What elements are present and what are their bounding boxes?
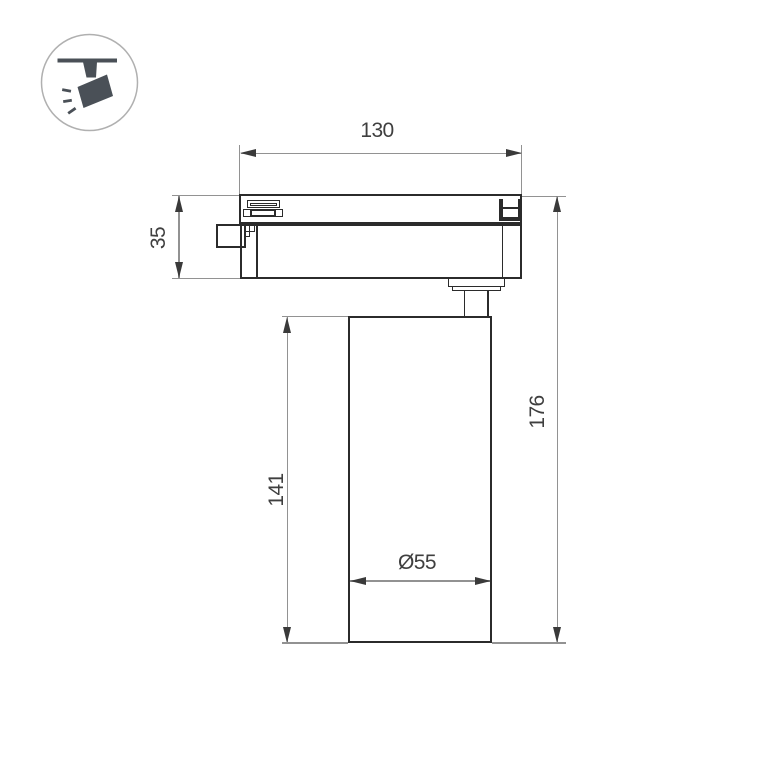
- dimension-line: [557, 197, 558, 643]
- contact-bar-upper-inner: [250, 203, 277, 206]
- technical-drawing-canvas: 130 35 141 176: [0, 0, 767, 767]
- arrowhead: [283, 627, 291, 643]
- dimension-line: [350, 580, 490, 581]
- arrowhead: [553, 627, 561, 643]
- swivel-stem-line: [464, 290, 466, 316]
- dimension-line: [241, 153, 521, 154]
- knob-latch-step: [246, 224, 250, 237]
- track-spotlight-icon: [40, 33, 139, 132]
- arrowhead: [175, 196, 183, 212]
- adapter-inner-line: [256, 226, 258, 277]
- arrowhead: [283, 317, 291, 333]
- dim-label-adapter-height: 35: [148, 213, 170, 263]
- adapter-connector-crossbar: [503, 207, 518, 210]
- dim-label-body-diameter: Ø55: [377, 552, 457, 574]
- dim-label-overall-height: 176: [527, 387, 549, 437]
- swivel-bracket-step2: [452, 286, 501, 292]
- adapter-lower-housing: [240, 224, 522, 279]
- adapter-inner-line: [502, 226, 504, 277]
- arrowhead: [350, 577, 366, 585]
- arrowhead: [506, 149, 522, 157]
- lock-knob: [216, 224, 246, 248]
- arrowhead: [175, 262, 183, 278]
- lamp-body-outline: [348, 316, 492, 643]
- dim-label-body-height: 141: [266, 465, 288, 515]
- arrowhead: [553, 196, 561, 212]
- arrowhead: [240, 149, 256, 157]
- extension-line: [282, 316, 348, 317]
- adapter-connector-detail: [499, 199, 522, 221]
- arrowhead: [475, 577, 491, 585]
- contact-bar-lower-inner: [250, 209, 276, 217]
- icon-track-bar: [58, 59, 118, 63]
- dim-label-track-width: 130: [337, 120, 417, 142]
- extension-line-bottom: [492, 642, 566, 643]
- swivel-stem-line: [487, 290, 489, 316]
- extension-line-bottom: [282, 642, 348, 643]
